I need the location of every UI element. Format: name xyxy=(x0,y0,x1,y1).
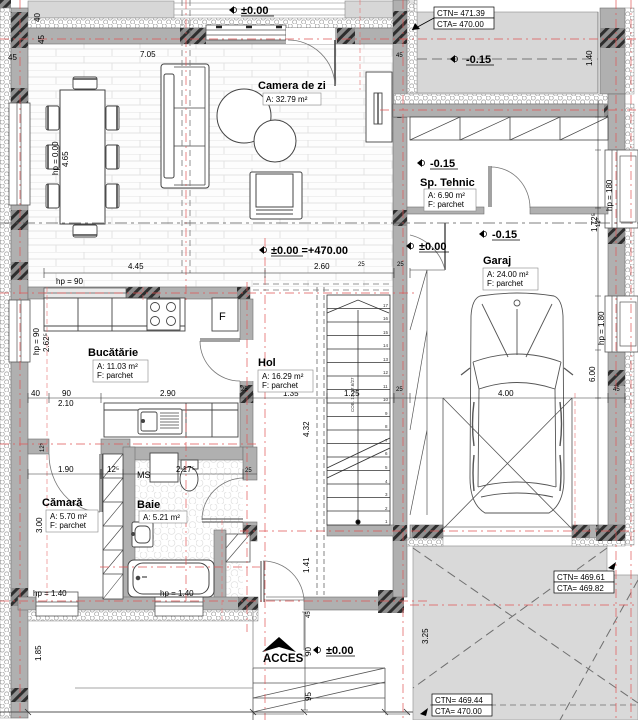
svg-text:CTA= 470.00: CTA= 470.00 xyxy=(437,20,484,29)
svg-text:A: 32.79 m²: A: 32.79 m² xyxy=(266,95,308,104)
svg-text:A: 16.29 m²: A: 16.29 m² xyxy=(262,372,304,381)
svg-text:40: 40 xyxy=(31,389,40,398)
svg-text:12⁵: 12⁵ xyxy=(595,217,602,227)
svg-text:12⁵: 12⁵ xyxy=(107,465,119,474)
svg-text:16: 16 xyxy=(383,316,389,321)
svg-text:4.00: 4.00 xyxy=(498,389,514,398)
svg-text:Bucătărie: Bucătărie xyxy=(88,347,138,359)
svg-text:Cămară: Cămară xyxy=(42,497,83,509)
svg-text:F: parchet: F: parchet xyxy=(50,521,87,530)
svg-text:12⁵: 12⁵ xyxy=(39,442,46,452)
svg-text:hp = 1.40: hp = 1.40 xyxy=(33,589,67,598)
svg-text:F: F xyxy=(219,311,226,323)
svg-text:CTN= 469.44: CTN= 469.44 xyxy=(435,696,483,705)
svg-text:A: 24.00 m²: A: 24.00 m² xyxy=(487,270,529,279)
svg-text:MS: MS xyxy=(137,470,151,480)
svg-text:Garaj: Garaj xyxy=(483,255,511,267)
svg-text:17: 17 xyxy=(383,303,389,308)
svg-text:1.90: 1.90 xyxy=(58,465,74,474)
svg-text:95: 95 xyxy=(304,692,313,701)
svg-text:45: 45 xyxy=(37,35,46,44)
svg-text:-0.15: -0.15 xyxy=(466,54,491,66)
svg-text:7.05: 7.05 xyxy=(140,50,156,59)
svg-text:25: 25 xyxy=(396,387,403,393)
svg-text:13: 13 xyxy=(383,357,389,362)
svg-text:hp = 90: hp = 90 xyxy=(32,328,41,355)
svg-text:4.32: 4.32 xyxy=(302,421,311,437)
svg-text:1.25: 1.25 xyxy=(344,389,360,398)
svg-text:6.00: 6.00 xyxy=(588,366,597,382)
svg-text:40: 40 xyxy=(33,13,42,22)
svg-text:-0.15: -0.15 xyxy=(492,229,517,241)
svg-text:±0.00 =+470.00: ±0.00 =+470.00 xyxy=(271,245,348,257)
svg-text:12: 12 xyxy=(383,370,389,375)
svg-text:ACCES: ACCES xyxy=(263,653,304,665)
svg-text:F: parchet: F: parchet xyxy=(97,371,134,380)
svg-text:25: 25 xyxy=(241,387,248,393)
svg-text:CTA= 469.82: CTA= 469.82 xyxy=(557,584,604,593)
svg-text:Hol: Hol xyxy=(258,357,276,369)
svg-text:±0.00: ±0.00 xyxy=(419,241,446,253)
svg-text:Baie: Baie xyxy=(137,499,160,511)
svg-text:45: 45 xyxy=(8,53,17,62)
svg-text:14: 14 xyxy=(383,343,389,348)
svg-text:hp = 1.40: hp = 1.40 xyxy=(160,589,194,598)
svg-text:±0.00: ±0.00 xyxy=(326,645,353,657)
svg-text:45: 45 xyxy=(613,387,620,393)
svg-text:-0.15: -0.15 xyxy=(430,158,455,170)
svg-text:CTA= 470.00: CTA= 470.00 xyxy=(435,707,482,716)
svg-text:1.41: 1.41 xyxy=(302,557,311,573)
svg-text:A: 11.03 m²: A: 11.03 m² xyxy=(97,362,138,371)
svg-text:Sp. Tehnic: Sp. Tehnic xyxy=(420,177,475,189)
svg-text:15: 15 xyxy=(383,330,389,335)
svg-text:±0.00: ±0.00 xyxy=(241,5,268,17)
svg-text:hp = 1.80: hp = 1.80 xyxy=(597,311,606,345)
svg-text:1.85: 1.85 xyxy=(34,645,43,661)
svg-text:90: 90 xyxy=(62,389,71,398)
svg-text:25: 25 xyxy=(358,262,365,268)
svg-text:2.60: 2.60 xyxy=(314,262,330,271)
svg-text:11: 11 xyxy=(383,384,388,389)
svg-text:F: parchet: F: parchet xyxy=(487,279,524,288)
svg-text:25: 25 xyxy=(245,468,252,474)
svg-text:2.90: 2.90 xyxy=(160,389,176,398)
svg-text:45: 45 xyxy=(396,53,403,59)
svg-text:4.65: 4.65 xyxy=(61,151,70,167)
svg-text:CTN= 469.61: CTN= 469.61 xyxy=(557,573,605,582)
svg-text:2.62⁵: 2.62⁵ xyxy=(42,333,51,352)
svg-text:4.45: 4.45 xyxy=(128,262,144,271)
svg-text:hp = 180: hp = 180 xyxy=(605,179,614,211)
svg-text:2.17⁵: 2.17⁵ xyxy=(176,465,195,474)
svg-text:1.40: 1.40 xyxy=(585,50,594,66)
svg-text:A: 5.21 m²: A: 5.21 m² xyxy=(143,513,180,522)
svg-text:Camera de zi: Camera de zi xyxy=(258,80,326,92)
svg-text:90: 90 xyxy=(304,647,313,656)
svg-text:A: 5.70 m²: A: 5.70 m² xyxy=(50,512,87,521)
svg-text:3.25: 3.25 xyxy=(421,628,430,644)
svg-text:hp = 90: hp = 90 xyxy=(56,277,83,286)
svg-text:25: 25 xyxy=(397,262,404,268)
svg-text:hp = 0.00: hp = 0.00 xyxy=(51,141,60,175)
svg-text:3.00: 3.00 xyxy=(35,517,44,533)
svg-text:2.10: 2.10 xyxy=(58,399,74,408)
svg-text:CTN= 471.39: CTN= 471.39 xyxy=(437,9,485,18)
svg-text:F: parchet: F: parchet xyxy=(428,200,465,209)
svg-text:A: 6.90 m²: A: 6.90 m² xyxy=(428,191,465,200)
svg-text:F: parchet: F: parchet xyxy=(262,381,299,390)
